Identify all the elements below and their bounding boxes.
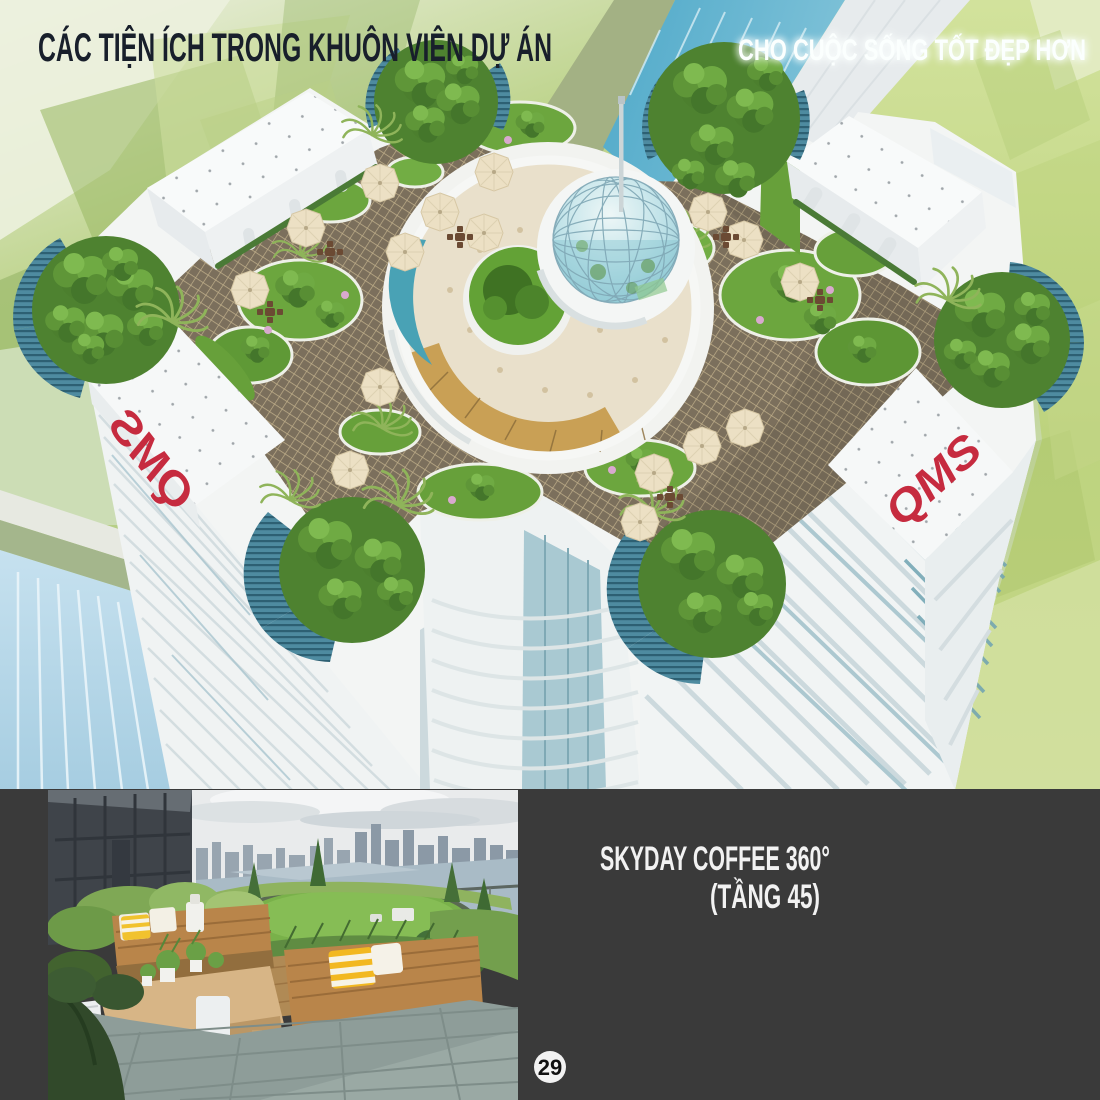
svg-text:(TẦNG 45): (TẦNG 45)	[710, 878, 820, 916]
svg-text:CÁC TIỆN ÍCH TRONG KHUÔN VIÊN: CÁC TIỆN ÍCH TRONG KHUÔN VIÊN DỰ ÁN	[38, 24, 552, 70]
svg-text:CHO CUỘC SỐNG TỐT ĐẸP HƠN: CHO CUỘC SỐNG TỐT ĐẸP HƠN	[738, 33, 1086, 67]
svg-text:29: 29	[538, 1055, 562, 1080]
svg-text:SKYDAY COFFEE 360°: SKYDAY COFFEE 360°	[600, 840, 830, 878]
